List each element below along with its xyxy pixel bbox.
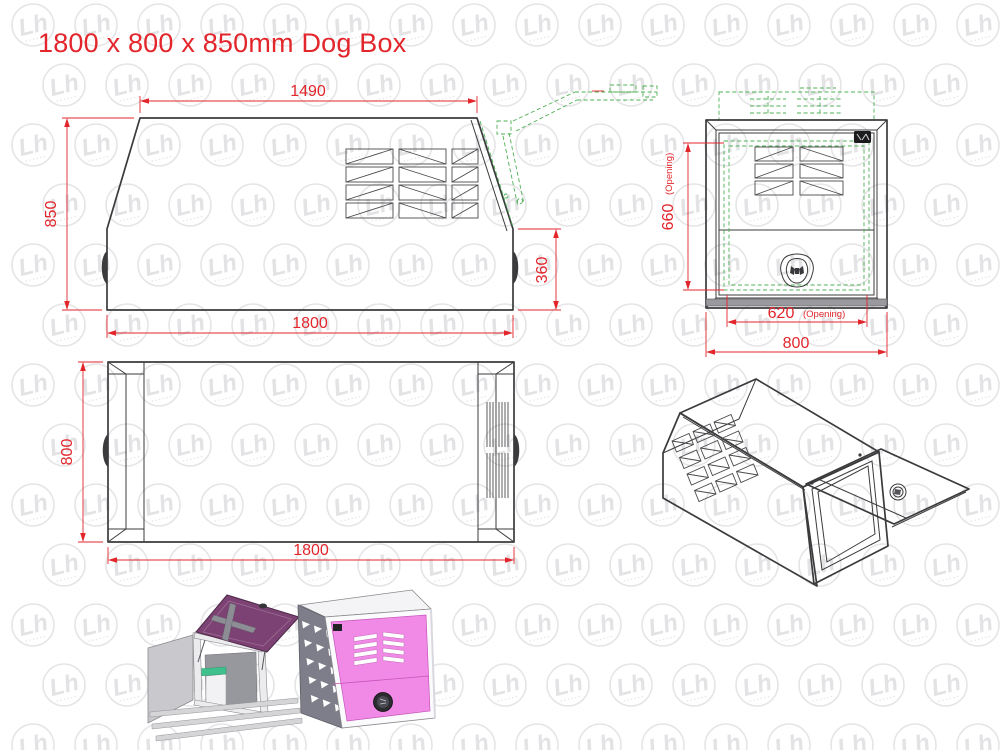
svg-text:Lh: Lh (803, 429, 838, 462)
svg-text:Lh: Lh (79, 609, 114, 642)
svg-text:Lh: Lh (677, 669, 712, 702)
svg-text:Lh: Lh (488, 69, 523, 102)
svg-text:Lh: Lh (677, 549, 712, 582)
svg-text:Lh: Lh (173, 549, 208, 582)
svg-text:Lh: Lh (16, 249, 51, 282)
svg-text:Lh: Lh (520, 609, 555, 642)
svg-text:Lh: Lh (236, 309, 271, 342)
svg-text:Lh: Lh (331, 369, 366, 402)
svg-text:Lh: Lh (835, 729, 870, 750)
svg-text:Lh: Lh (961, 609, 996, 642)
dim-opening-height-note: (Opening) (664, 153, 675, 195)
svg-text:Lh: Lh (520, 489, 555, 522)
svg-text:Lh: Lh (79, 729, 114, 750)
svg-text:Lh: Lh (142, 249, 177, 282)
svg-text:Lh: Lh (173, 69, 208, 102)
svg-text:Lh: Lh (268, 249, 303, 282)
svg-text:Lh: Lh (898, 729, 933, 750)
svg-text:Lh: Lh (142, 489, 177, 522)
svg-text:Lh: Lh (551, 549, 586, 582)
svg-text:Lh: Lh (173, 429, 208, 462)
dim-overall-width-plan-label: 800 (59, 439, 76, 466)
svg-text:Lh: Lh (709, 609, 744, 642)
iso-open-door (806, 449, 969, 524)
svg-text:Lh: Lh (268, 729, 303, 750)
svg-text:Lh: Lh (331, 129, 366, 162)
svg-text:Lh: Lh (16, 369, 51, 402)
svg-text:Lh: Lh (110, 549, 145, 582)
svg-text:Lh: Lh (268, 489, 303, 522)
svg-text:Lh: Lh (362, 429, 397, 462)
svg-text:Lh: Lh (961, 9, 996, 42)
svg-text:Lh: Lh (236, 189, 271, 222)
svg-text:Lh: Lh (614, 189, 649, 222)
svg-text:Lh: Lh (205, 129, 240, 162)
svg-text:Lh: Lh (425, 309, 460, 342)
dim-opening-width-label: 620 (768, 305, 795, 322)
svg-text:Lh: Lh (205, 489, 240, 522)
svg-text:Lh: Lh (583, 489, 618, 522)
svg-text:Lh: Lh (362, 69, 397, 102)
svg-text:Lh: Lh (646, 249, 681, 282)
svg-text:Lh: Lh (457, 249, 492, 282)
svg-text:Lh: Lh (646, 609, 681, 642)
svg-text:Lh: Lh (520, 369, 555, 402)
dim-overall-width-front-label: 800 (783, 335, 810, 352)
svg-text:Lh: Lh (299, 429, 334, 462)
svg-text:Lh: Lh (583, 369, 618, 402)
drawing-sheet: LhLhLhLhLhLhLhLhLhLhLhLhLhLhLhLhLhLhLhLh… (0, 0, 1000, 750)
svg-text:Lh: Lh (677, 69, 712, 102)
dim-opening-height-label: 660 (660, 204, 677, 231)
svg-text:Lh: Lh (520, 9, 555, 42)
svg-text:Lh: Lh (614, 669, 649, 702)
svg-text:Lh: Lh (488, 549, 523, 582)
render-pink-front (298, 590, 435, 728)
svg-text:Lh: Lh (709, 129, 744, 162)
svg-text:Lh: Lh (835, 609, 870, 642)
svg-text:Lh: Lh (772, 9, 807, 42)
svg-text:Lh: Lh (16, 729, 51, 750)
svg-text:Lh: Lh (898, 609, 933, 642)
svg-text:Lh: Lh (898, 369, 933, 402)
svg-text:Lh: Lh (898, 249, 933, 282)
svg-text:Lh: Lh (803, 189, 838, 222)
svg-text:Lh: Lh (142, 129, 177, 162)
svg-text:Lh: Lh (47, 669, 82, 702)
svg-text:Lh: Lh (583, 729, 618, 750)
svg-text:Lh: Lh (425, 549, 460, 582)
svg-text:Lh: Lh (583, 609, 618, 642)
svg-text:Lh: Lh (772, 729, 807, 750)
svg-text:Lh: Lh (205, 249, 240, 282)
svg-text:Lh: Lh (551, 669, 586, 702)
svg-text:Lh: Lh (929, 189, 964, 222)
svg-text:Lh: Lh (331, 249, 366, 282)
svg-text:Lh: Lh (866, 549, 901, 582)
svg-text:Lh: Lh (772, 369, 807, 402)
svg-text:Lh: Lh (551, 69, 586, 102)
svg-text:Lh: Lh (425, 69, 460, 102)
svg-text:Lh: Lh (898, 9, 933, 42)
svg-text:Lh: Lh (961, 489, 996, 522)
dim-overall-width-front: 800 (706, 312, 887, 357)
svg-text:Lh: Lh (583, 129, 618, 162)
svg-text:Lh: Lh (394, 729, 429, 750)
svg-text:Lh: Lh (866, 429, 901, 462)
svg-text:Lh: Lh (488, 309, 523, 342)
svg-text:Lh: Lh (961, 729, 996, 750)
svg-text:Lh: Lh (709, 249, 744, 282)
page-title: 1800 x 800 x 850mm Dog Box (38, 28, 406, 59)
svg-text:Lh: Lh (110, 429, 145, 462)
svg-text:Lh: Lh (929, 549, 964, 582)
svg-text:Lh: Lh (929, 669, 964, 702)
watermark-pattern: LhLhLhLhLhLhLhLhLhLhLhLhLhLhLhLhLhLhLhLh… (12, 4, 999, 750)
svg-text:Lh: Lh (110, 309, 145, 342)
render1-door-latch-dot (259, 604, 267, 609)
svg-text:Lh: Lh (236, 429, 271, 462)
svg-text:Lh: Lh (16, 489, 51, 522)
dim-overall-length-side-label: 1800 (292, 315, 328, 332)
dim-overall-length-plan-label: 1800 (293, 542, 329, 559)
svg-text:Lh: Lh (740, 669, 775, 702)
svg-text:Lh: Lh (614, 549, 649, 582)
svg-text:Lh: Lh (740, 549, 775, 582)
svg-text:Lh: Lh (394, 369, 429, 402)
svg-text:Lh: Lh (740, 69, 775, 102)
svg-text:Lh: Lh (268, 129, 303, 162)
svg-text:Lh: Lh (173, 309, 208, 342)
svg-text:Lh: Lh (205, 369, 240, 402)
iso-hinge-pin-2 (810, 481, 813, 484)
svg-text:Lh: Lh (646, 9, 681, 42)
svg-text:Lh: Lh (866, 669, 901, 702)
svg-text:Lh: Lh (110, 669, 145, 702)
svg-text:Lh: Lh (362, 189, 397, 222)
svg-text:Lh: Lh (835, 9, 870, 42)
svg-text:Lh: Lh (709, 9, 744, 42)
technical-drawing-svg: LhLhLhLhLhLhLhLhLhLhLhLhLhLhLhLhLhLhLhLh… (0, 0, 1000, 750)
svg-text:Lh: Lh (362, 309, 397, 342)
svg-text:Lh: Lh (803, 669, 838, 702)
svg-text:Lh: Lh (457, 489, 492, 522)
svg-text:Lh: Lh (299, 189, 334, 222)
plan-left-hinge (103, 434, 108, 467)
dim-opening-width-note: (Opening) (803, 309, 845, 320)
svg-text:Lh: Lh (551, 429, 586, 462)
svg-text:Lh: Lh (331, 489, 366, 522)
svg-text:Lh: Lh (142, 609, 177, 642)
brand-logo-sticker (854, 131, 871, 143)
svg-text:Lh: Lh (929, 429, 964, 462)
svg-text:Lh: Lh (457, 729, 492, 750)
svg-text:Lh: Lh (709, 729, 744, 750)
render2-latch (374, 693, 393, 712)
svg-text:Lh: Lh (929, 69, 964, 102)
svg-text:Lh: Lh (929, 309, 964, 342)
svg-text:Lh: Lh (961, 129, 996, 162)
dim-rear-panel-height-label: 360 (534, 257, 551, 284)
svg-text:Lh: Lh (394, 249, 429, 282)
svg-text:Lh: Lh (331, 729, 366, 750)
svg-text:Lh: Lh (583, 249, 618, 282)
dim-height-label: 850 (43, 201, 60, 228)
svg-text:Lh: Lh (866, 69, 901, 102)
svg-text:Lh: Lh (646, 729, 681, 750)
svg-text:Lh: Lh (47, 549, 82, 582)
svg-text:Lh: Lh (110, 69, 145, 102)
svg-text:Lh: Lh (772, 609, 807, 642)
svg-text:Lh: Lh (268, 369, 303, 402)
svg-text:Lh: Lh (16, 129, 51, 162)
svg-text:Lh: Lh (362, 549, 397, 582)
iso-hinge-pin (858, 453, 861, 456)
svg-text:Lh: Lh (583, 9, 618, 42)
svg-text:Lh: Lh (614, 429, 649, 462)
svg-text:Lh: Lh (898, 129, 933, 162)
svg-text:Lh: Lh (614, 69, 649, 102)
svg-text:Lh: Lh (772, 129, 807, 162)
svg-text:Lh: Lh (646, 369, 681, 402)
svg-text:Lh: Lh (772, 489, 807, 522)
svg-text:Lh: Lh (142, 369, 177, 402)
side-door-edge-line (471, 120, 507, 231)
svg-text:Lh: Lh (457, 9, 492, 42)
svg-text:Lh: Lh (79, 129, 114, 162)
svg-text:Lh: Lh (236, 69, 271, 102)
svg-text:Lh: Lh (614, 309, 649, 342)
svg-text:Lh: Lh (520, 729, 555, 750)
front-door-open-projection (719, 88, 874, 120)
svg-text:Lh: Lh (866, 309, 901, 342)
svg-text:Lh: Lh (173, 189, 208, 222)
svg-text:Lh: Lh (520, 129, 555, 162)
dim-top-width-label: 1490 (290, 83, 326, 100)
svg-text:Lh: Lh (16, 609, 51, 642)
svg-text:Lh: Lh (425, 429, 460, 462)
svg-text:Lh: Lh (866, 189, 901, 222)
front-bottom-sill (706, 299, 887, 306)
svg-text:Lh: Lh (79, 249, 114, 282)
svg-text:Lh: Lh (835, 369, 870, 402)
svg-text:Lh: Lh (394, 489, 429, 522)
svg-text:Lh: Lh (961, 249, 996, 282)
svg-text:Lh: Lh (47, 309, 82, 342)
svg-text:Lh: Lh (236, 549, 271, 582)
svg-text:Lh: Lh (551, 189, 586, 222)
svg-text:Lh: Lh (961, 369, 996, 402)
render2-logo-sticker (333, 624, 342, 631)
svg-text:Lh: Lh (488, 669, 523, 702)
svg-text:Lh: Lh (47, 69, 82, 102)
svg-text:Lh: Lh (551, 309, 586, 342)
svg-text:Lh: Lh (457, 609, 492, 642)
